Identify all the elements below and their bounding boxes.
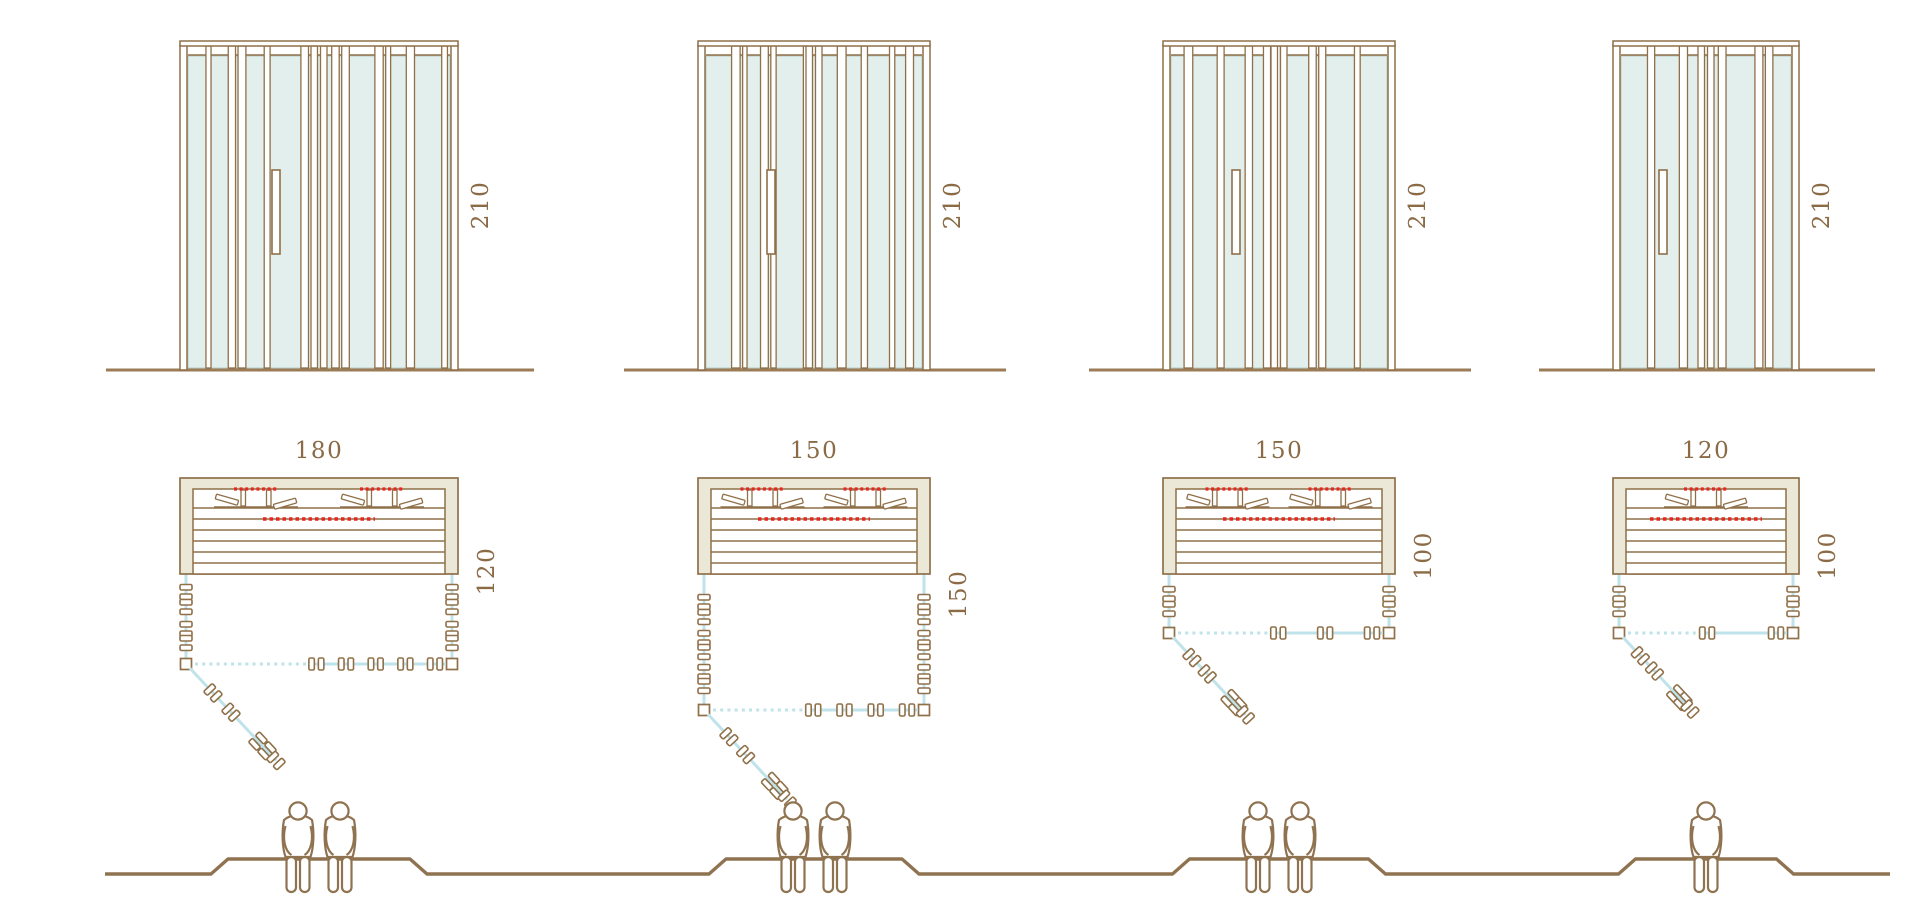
cabin-4-elevation: 210 [1539,41,1875,370]
cabin-4-width-dimension: 120 [1682,438,1730,464]
diagram-canvas: 210210210210180120150150150100120100 [0,0,1920,918]
open-glass-door [1623,637,1699,718]
door-handle [767,170,775,254]
seated-person-figure [325,802,356,892]
cabin-2-width-dimension: 150 [790,438,838,464]
cabin-2-seating-section [778,802,851,892]
cabin-3-depth-dimension: 100 [1411,531,1437,579]
cabin-3-height-dimension: 210 [1405,181,1431,229]
glass-corner-post [1614,628,1625,639]
open-glass-door [708,714,797,808]
cabin-1-height-dimension: 210 [468,181,494,229]
seated-person-figure [283,802,314,892]
glass-corner-post [447,659,458,670]
cabin-4-height-dimension: 210 [1809,181,1835,229]
glass-corner-post [1164,628,1175,639]
seated-person-figure [778,802,809,892]
cabin-4-floor-plan: 120100 [1613,438,1841,719]
cabin-3-elevation: 210 [1089,41,1471,370]
cabin-3-seating-section [1243,802,1316,892]
bench-profile-line [105,859,1890,874]
cabin-1-elevation: 210 [106,41,534,370]
cabin-2-depth-dimension: 150 [946,570,972,618]
cabin-2-floor-plan: 150150 [698,438,972,809]
glass-corner-post [919,705,930,716]
open-glass-door [190,668,285,770]
sauna-size-diagram: 210210210210180120150150150100120100 [0,0,1920,918]
glass-corner-post [699,705,710,716]
cabin-3-floor-plan: 150100 [1163,438,1437,724]
cabin-4-seating-section [1691,802,1722,892]
door-handle [272,170,280,254]
open-glass-door [1173,637,1255,724]
cabin-1-width-dimension: 180 [295,438,343,464]
door-handle [1232,170,1240,254]
seated-person-figure [1691,802,1722,892]
cabin-1-seating-section [283,802,356,892]
seated-person-figure [1285,802,1316,892]
cabin-1-floor-plan: 180120 [180,438,500,770]
seated-person-figure [820,802,851,892]
door-handle [1659,170,1667,254]
cabin-3-width-dimension: 150 [1255,438,1303,464]
cabin-1-depth-dimension: 120 [474,547,500,595]
glass-corner-post [1384,628,1395,639]
cabin-4-depth-dimension: 100 [1815,531,1841,579]
seated-person-figure [1243,802,1274,892]
glass-corner-post [181,659,192,670]
glass-corner-post [1788,628,1799,639]
seating-section-row [105,802,1890,892]
cabin-2-elevation: 210 [624,41,1006,370]
cabin-2-height-dimension: 210 [940,181,966,229]
